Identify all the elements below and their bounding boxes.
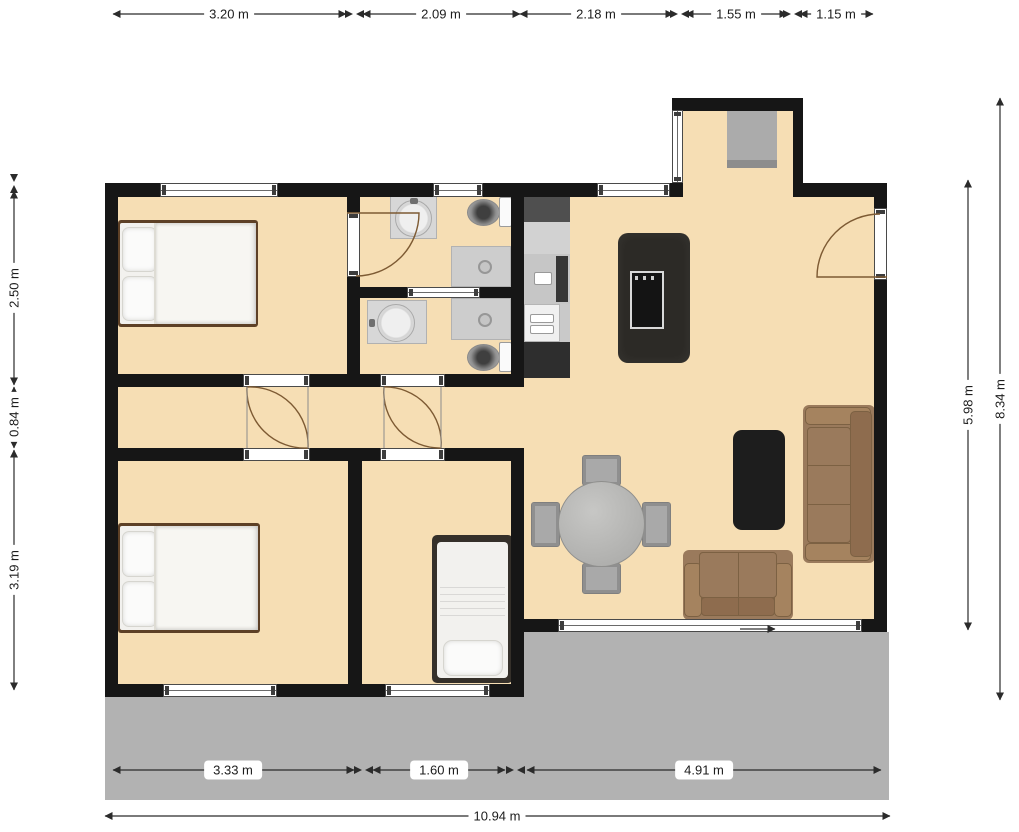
wall-smallroom-living <box>511 448 524 697</box>
dining-chair <box>531 502 560 547</box>
faucet-icon <box>410 198 418 204</box>
bed-duvet <box>154 223 256 324</box>
door-opening-bedroom1 <box>243 374 310 387</box>
dim-label-bottom-3: 4.91 m <box>675 761 733 780</box>
shower-drain <box>478 260 492 274</box>
sink-basin <box>377 304 415 342</box>
kitchen-counter <box>524 197 570 378</box>
door-opening-bathroom1 <box>347 212 360 277</box>
dim-label-right-1: 5.98 m <box>960 380 977 430</box>
sliding-door-terrace <box>558 619 862 632</box>
window-bathroom-divider <box>407 287 480 298</box>
appliance-handle <box>530 325 554 334</box>
double-bed-bedroom1 <box>118 220 258 327</box>
toilet <box>467 341 513 373</box>
sofa-seat-cushions <box>807 427 851 543</box>
bed-blanket-folds <box>440 587 505 621</box>
dim-label-left-1: 2.50 m <box>6 263 23 313</box>
sofa-backrest <box>850 411 872 557</box>
faucet-icon <box>369 319 375 327</box>
window-kitchen <box>597 183 670 197</box>
shower-tray <box>451 298 511 340</box>
toilet-bowl <box>467 344 500 371</box>
bed-pillow <box>122 227 157 272</box>
toilet-bowl <box>467 199 500 226</box>
bed-pillow <box>122 276 157 321</box>
dining-table <box>558 481 645 567</box>
window-entry-nook <box>672 110 683 183</box>
dining-chair <box>582 563 621 594</box>
terrace-left <box>105 697 524 800</box>
window-smallroom <box>385 684 490 697</box>
kitchen-sink-unit <box>524 254 570 304</box>
kitchen-worktop <box>524 222 570 254</box>
dim-label-top-1: 3.20 m <box>204 6 254 23</box>
sofa-seat-front <box>701 597 775 616</box>
door-opening-bathroom2 <box>380 374 445 387</box>
kitchen-cabinet <box>524 342 570 378</box>
coffee-table <box>733 430 785 530</box>
dim-label-right-2: 8.34 m <box>992 374 1009 424</box>
double-bed-bedroom2 <box>118 523 260 633</box>
wall-living-south-right <box>862 619 887 632</box>
wall-hallway-south <box>105 448 524 461</box>
dim-label-left-2: 0.84 m <box>6 392 23 442</box>
counter-dark-edge <box>556 256 568 302</box>
wall-hallway-north <box>105 374 524 387</box>
bathroom-sink-vanity <box>390 196 437 239</box>
floor-plan-canvas: 3.20 m 2.09 m 2.18 m 1.55 m 1.15 m 2.50 … <box>0 0 1019 832</box>
shower-drain <box>478 313 492 327</box>
sofa-back-cushions <box>699 552 777 598</box>
doormat <box>727 110 777 168</box>
kitchen-fridge <box>524 197 570 222</box>
sink-basin <box>395 200 432 237</box>
bed-pillow <box>443 640 503 676</box>
wall-bathroom-kitchen <box>511 183 524 387</box>
single-bed <box>432 535 513 683</box>
bed-duvet <box>154 526 258 630</box>
dim-label-top-3: 2.18 m <box>571 6 621 23</box>
kitchen-island <box>618 233 690 363</box>
bathroom-sink-vanity <box>367 300 427 344</box>
dim-label-top-2: 2.09 m <box>416 6 466 23</box>
bed-pillow <box>122 531 157 577</box>
window-bedroom2 <box>163 684 277 697</box>
door-opening-bedroom2 <box>243 448 310 461</box>
sofa-three-seat <box>803 405 875 563</box>
wall-exterior-left <box>105 183 118 697</box>
window-bedroom1 <box>160 183 278 197</box>
wall-entry-top <box>672 98 803 111</box>
entry-door-threshold <box>874 208 887 280</box>
wall-bedroom2-smallroom <box>348 448 362 697</box>
dim-label-top-4: 1.55 m <box>711 6 761 23</box>
cooktop-oven <box>630 271 664 329</box>
dim-label-top-5: 1.15 m <box>811 6 861 23</box>
dim-label-overall-width: 10.94 m <box>469 808 526 825</box>
cooktop-knobs <box>635 276 659 280</box>
bed-pillow <box>122 581 157 627</box>
sink-knob <box>534 272 552 285</box>
dining-chair <box>642 502 671 547</box>
window-bathroom1 <box>433 183 483 197</box>
shower-tray <box>451 246 511 287</box>
door-opening-smallroom <box>380 448 445 461</box>
toilet <box>467 196 513 228</box>
dim-label-bottom-1: 3.33 m <box>204 761 262 780</box>
kitchen-dishwasher <box>524 304 560 342</box>
dim-label-left-3: 3.19 m <box>6 545 23 595</box>
appliance-handle <box>530 314 554 323</box>
wall-exterior-top-right <box>793 183 887 197</box>
dim-label-bottom-2: 1.60 m <box>410 761 468 780</box>
sofa-loveseat <box>683 550 793 620</box>
